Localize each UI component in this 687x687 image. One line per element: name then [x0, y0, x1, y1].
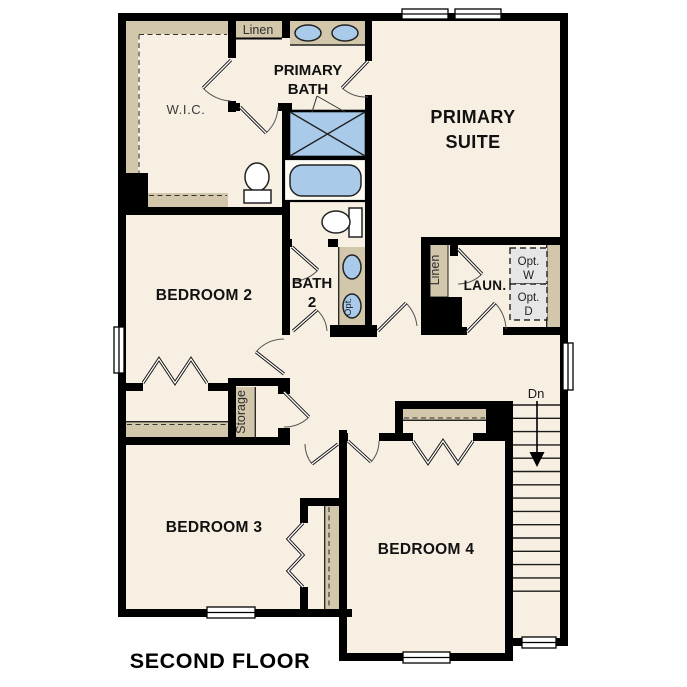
- primary-suite-label-line2: SUITE: [445, 132, 500, 152]
- floor-plan-page: W.I.C. Linen PRIMARY BATH PRIMARY SUITE …: [0, 0, 687, 687]
- primary-suite-label-line1: PRIMARY: [430, 107, 515, 127]
- bathtub: [284, 159, 366, 201]
- opt-dryer-label-line1: Opt.: [518, 292, 540, 304]
- opt-washer-label-line2: W: [523, 270, 534, 282]
- bath2-label-line2: 2: [308, 294, 316, 311]
- toilet-primary: [244, 163, 271, 203]
- opt-dryer-label-line2: D: [524, 306, 532, 318]
- linen-top-label: Linen: [243, 23, 274, 37]
- primary-bath-label-line2: BATH: [288, 81, 329, 98]
- primary-bath-label-line1: PRIMARY: [274, 62, 343, 79]
- bedroom3-label: BEDROOM 3: [166, 519, 263, 536]
- floor-plan-drawing: W.I.C. Linen PRIMARY BATH PRIMARY SUITE …: [0, 0, 687, 687]
- stairs-down-label: Dn: [528, 386, 545, 401]
- bath2-label-line1: BATH: [292, 275, 333, 292]
- wic-label: W.I.C.: [167, 102, 206, 117]
- page-title: SECOND FLOOR: [130, 649, 310, 673]
- bath2-optional-sink-label: Opt.: [343, 298, 354, 316]
- bedroom4-label: BEDROOM 4: [378, 541, 475, 558]
- laundry-label: LAUN.: [464, 278, 507, 293]
- storage-label: Storage: [234, 390, 248, 434]
- laundry-linen-label: Linen: [428, 255, 442, 286]
- bedroom2-label: BEDROOM 2: [156, 287, 253, 304]
- opt-washer-label-line1: Opt.: [518, 256, 540, 268]
- shower: [289, 111, 366, 157]
